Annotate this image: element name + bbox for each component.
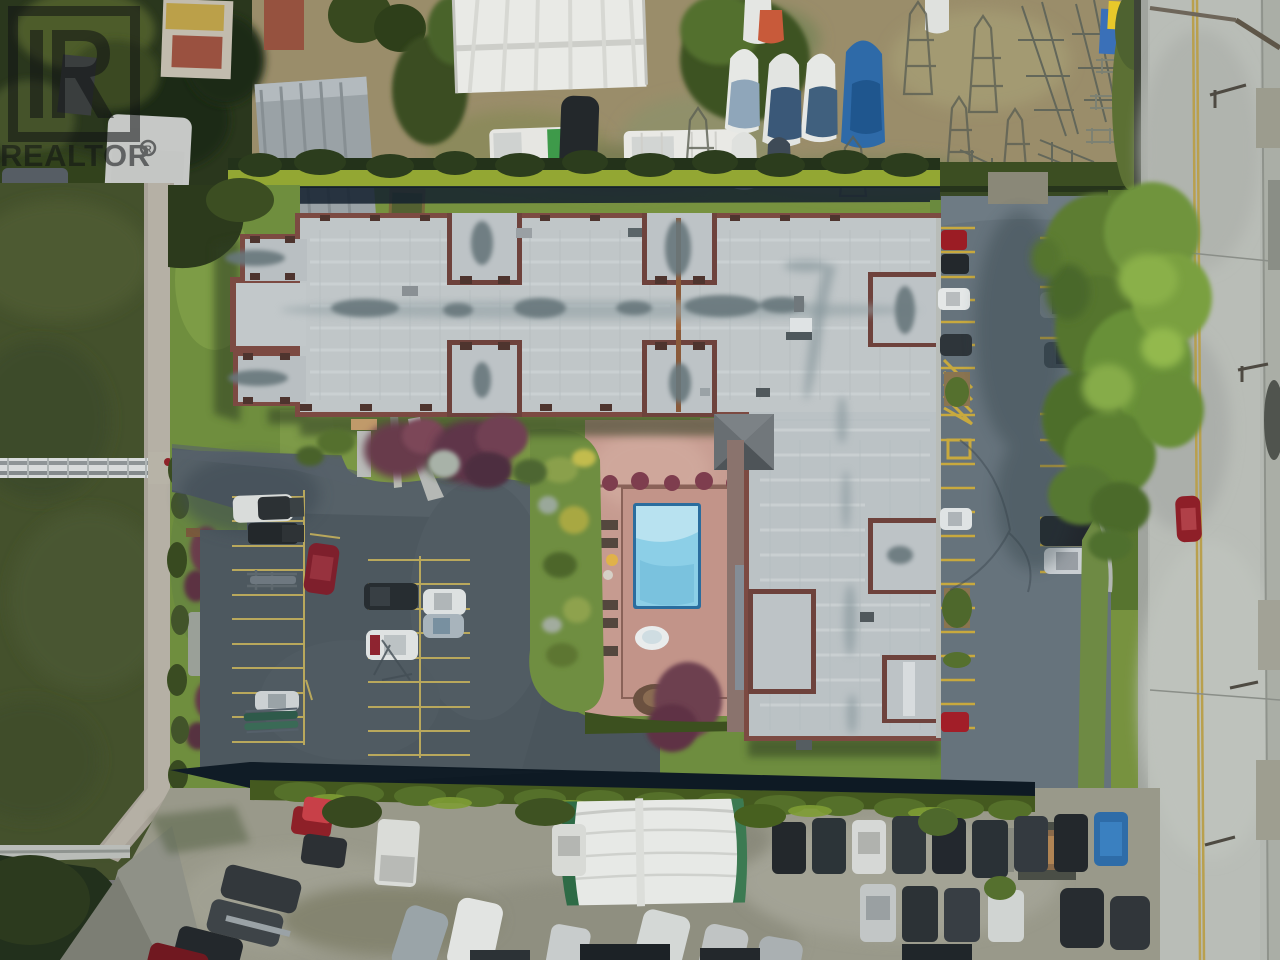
svg-text:REALTOR: REALTOR — [0, 138, 150, 173]
svg-text:R: R — [145, 145, 153, 156]
